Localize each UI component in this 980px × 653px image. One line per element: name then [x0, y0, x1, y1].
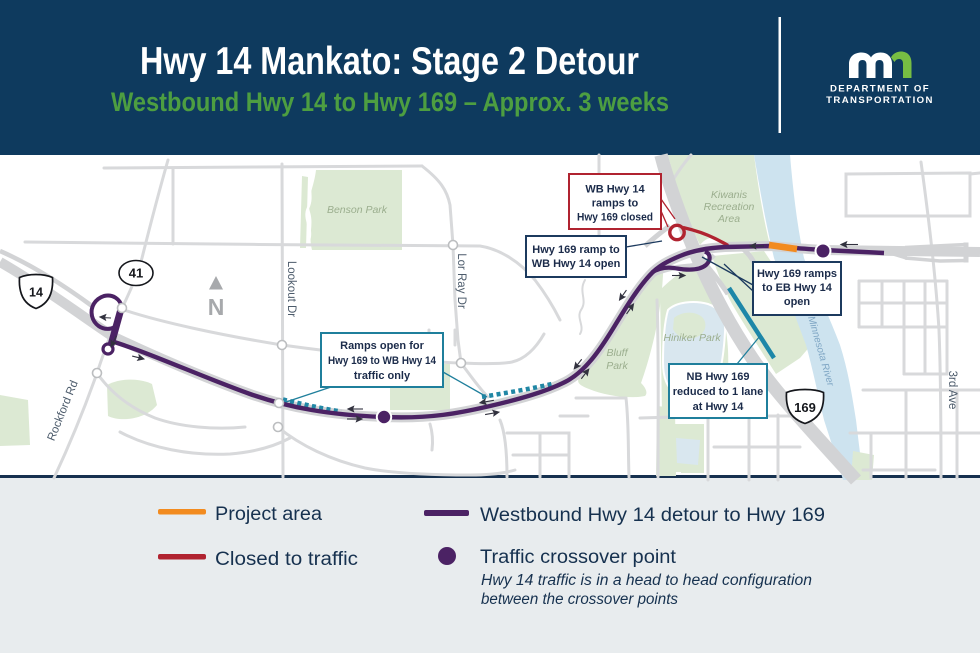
svg-text:Westbound Hwy 14 detour to Hwy: Westbound Hwy 14 detour to Hwy 169: [480, 505, 825, 526]
svg-text:to EB Hwy 14: to EB Hwy 14: [762, 282, 833, 294]
svg-text:ramps to: ramps to: [592, 198, 639, 210]
svg-text:Hwy 169 to WB Hwy 14: Hwy 169 to WB Hwy 14: [328, 355, 437, 367]
svg-text:Area: Area: [717, 213, 740, 225]
svg-text:169: 169: [794, 400, 816, 415]
svg-text:Recreation: Recreation: [704, 201, 755, 213]
svg-text:14: 14: [29, 286, 43, 300]
svg-text:Bluff: Bluff: [606, 347, 628, 359]
svg-text:Lor Ray Dr: Lor Ray Dr: [455, 253, 467, 309]
svg-text:Traffic crossover point: Traffic crossover point: [480, 547, 677, 568]
svg-text:DEPARTMENT OF: DEPARTMENT OF: [830, 84, 930, 95]
svg-text:Hiniker Park: Hiniker Park: [663, 332, 721, 344]
svg-text:WB Hwy 14: WB Hwy 14: [585, 184, 645, 196]
svg-text:Hwy 169 ramps: Hwy 169 ramps: [757, 268, 837, 280]
svg-text:open: open: [784, 296, 811, 308]
svg-text:at Hwy 14: at Hwy 14: [693, 401, 745, 413]
svg-text:reduced to 1 lane: reduced to 1 lane: [673, 386, 763, 398]
svg-text:41: 41: [129, 266, 143, 281]
svg-text:between the crossover points: between the crossover points: [481, 591, 678, 608]
svg-text:traffic only: traffic only: [354, 370, 411, 382]
svg-text:WB Hwy 14 open: WB Hwy 14 open: [532, 258, 621, 270]
svg-text:Hwy 169 closed: Hwy 169 closed: [577, 212, 653, 224]
svg-text:Closed to traffic: Closed to traffic: [215, 549, 358, 570]
svg-text:Benson Park: Benson Park: [327, 204, 388, 216]
svg-text:Kiwanis: Kiwanis: [711, 189, 748, 201]
svg-text:Lookout Dr: Lookout Dr: [285, 261, 297, 317]
svg-text:Westbound Hwy 14 to Hwy 169 –: Westbound Hwy 14 to Hwy 169 – Approx. 3 …: [111, 87, 669, 117]
svg-text:TRANSPORTATION: TRANSPORTATION: [826, 95, 934, 106]
svg-text:Hwy 14 traffic is in a head to: Hwy 14 traffic is in a head to head conf…: [481, 572, 812, 589]
svg-text:Ramps open for: Ramps open for: [340, 340, 424, 352]
svg-text:3rd Ave: 3rd Ave: [946, 371, 958, 410]
svg-text:NB Hwy 169: NB Hwy 169: [687, 371, 750, 383]
svg-text:Hwy 169 ramp to: Hwy 169 ramp to: [532, 244, 620, 256]
svg-text:Park: Park: [606, 360, 628, 372]
svg-text:Hwy 14 Mankato: Stage 2 Detour: Hwy 14 Mankato: Stage 2 Detour: [140, 40, 639, 83]
svg-text:N: N: [208, 294, 225, 320]
svg-text:Project area: Project area: [215, 504, 322, 525]
